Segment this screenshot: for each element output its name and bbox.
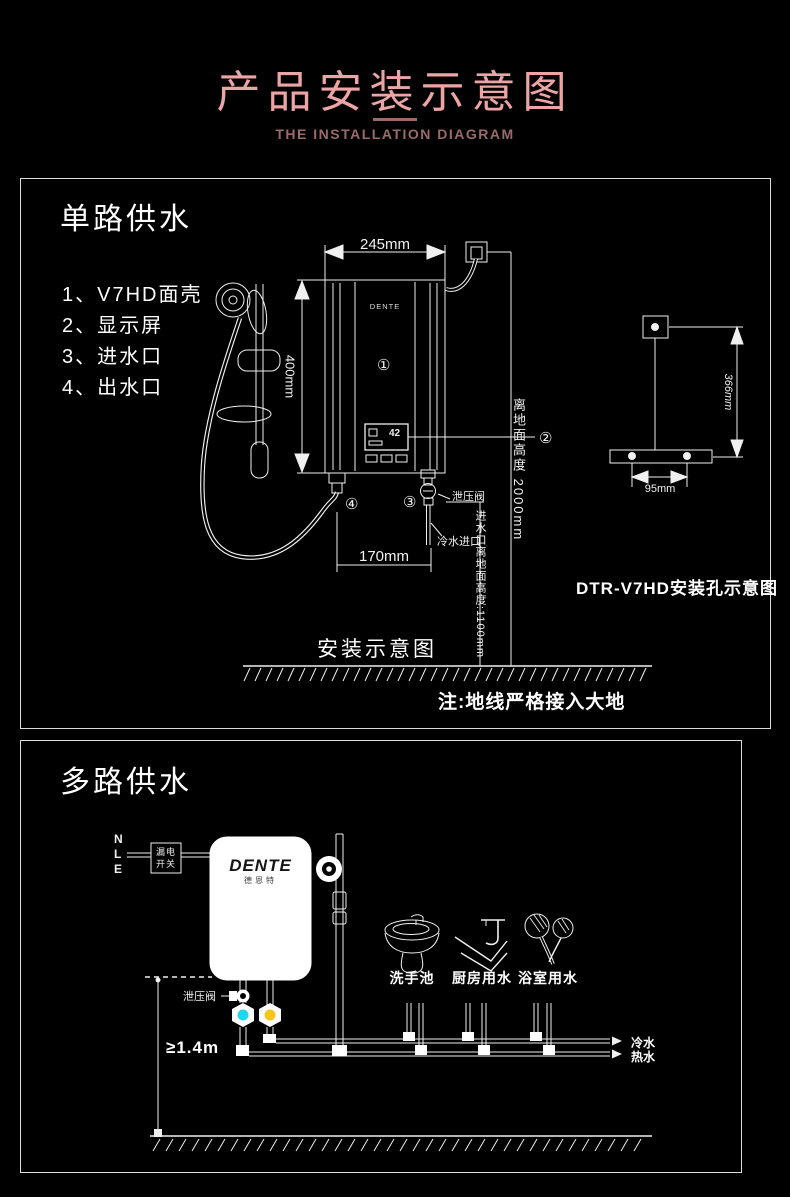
dim-width-label: 245mm bbox=[345, 236, 425, 253]
callout-4: ④ bbox=[345, 495, 358, 513]
diagram-caption: 安装示意图 bbox=[317, 633, 437, 663]
hole-spacing-label: 95mm bbox=[631, 483, 689, 495]
cold-inlet-label: 冷水进口 bbox=[437, 533, 481, 549]
ground-wire-note: 注:地线严格接入大地 bbox=[438, 687, 625, 714]
callout-2: ② bbox=[539, 429, 552, 447]
relief-valve-label-p2: 泄压阀 bbox=[183, 988, 216, 1004]
dim-spacing-label: 170mm bbox=[344, 548, 424, 565]
title-divider bbox=[373, 118, 417, 121]
fixture-label-bathroom: 浴室用水 bbox=[514, 968, 582, 988]
legend-item-3: 3、进水口 bbox=[62, 342, 202, 373]
dim-height-label: 400mm bbox=[283, 347, 298, 407]
breaker-label-line2: 开关 bbox=[151, 858, 181, 870]
wall-height-label: 离地面高度 2000mm bbox=[509, 398, 528, 541]
wire-label-l: L bbox=[114, 847, 123, 862]
legend-item-2: 2、显示屏 bbox=[62, 311, 202, 342]
page-subtitle: THE INSTALLATION DIAGRAM bbox=[0, 126, 790, 142]
wire-labels: N L E bbox=[114, 832, 123, 877]
hot-water-label: 热水 bbox=[631, 1048, 655, 1065]
panel1-heading: 单路供水 bbox=[60, 194, 192, 238]
parts-legend: 1、V7HD面壳 2、显示屏 3、进水口 4、出水口 bbox=[62, 280, 202, 404]
wire-label-e: E bbox=[114, 862, 123, 877]
callout-3: ③ bbox=[403, 493, 416, 511]
heater-brand-label: DENTE bbox=[362, 302, 408, 311]
fixture-label-basin: 洗手池 bbox=[386, 968, 438, 988]
display-temp-value: 42 bbox=[389, 428, 400, 439]
relief-valve-label-p1: 泄压阀 bbox=[452, 488, 485, 504]
callout-1: ① bbox=[377, 356, 390, 374]
min-height-label: ≥1.4m bbox=[166, 1038, 219, 1058]
legend-item-1: 1、V7HD面壳 bbox=[62, 280, 202, 311]
hole-height-label: 366mm bbox=[722, 364, 734, 420]
breaker-label-line1: 漏电 bbox=[151, 846, 181, 858]
breaker-label: 漏电 开关 bbox=[151, 846, 181, 870]
fixture-label-kitchen: 厨房用水 bbox=[448, 968, 516, 988]
installation-diagram-page: 产品安装示意图 THE INSTALLATION DIAGRAM 单路供水 1、… bbox=[0, 0, 790, 1197]
unit-brand-chinese: 德恩特 bbox=[213, 875, 308, 886]
unit-brand-logo: DENTE bbox=[213, 856, 308, 876]
wire-label-n: N bbox=[114, 832, 123, 847]
panel-multi-supply bbox=[20, 740, 742, 1173]
mounting-hole-caption: DTR-V7HD安装孔示意图 bbox=[576, 574, 778, 599]
panel2-heading: 多路供水 bbox=[60, 757, 192, 801]
page-title: 产品安装示意图 bbox=[0, 56, 790, 120]
legend-item-4: 4、出水口 bbox=[62, 373, 202, 404]
